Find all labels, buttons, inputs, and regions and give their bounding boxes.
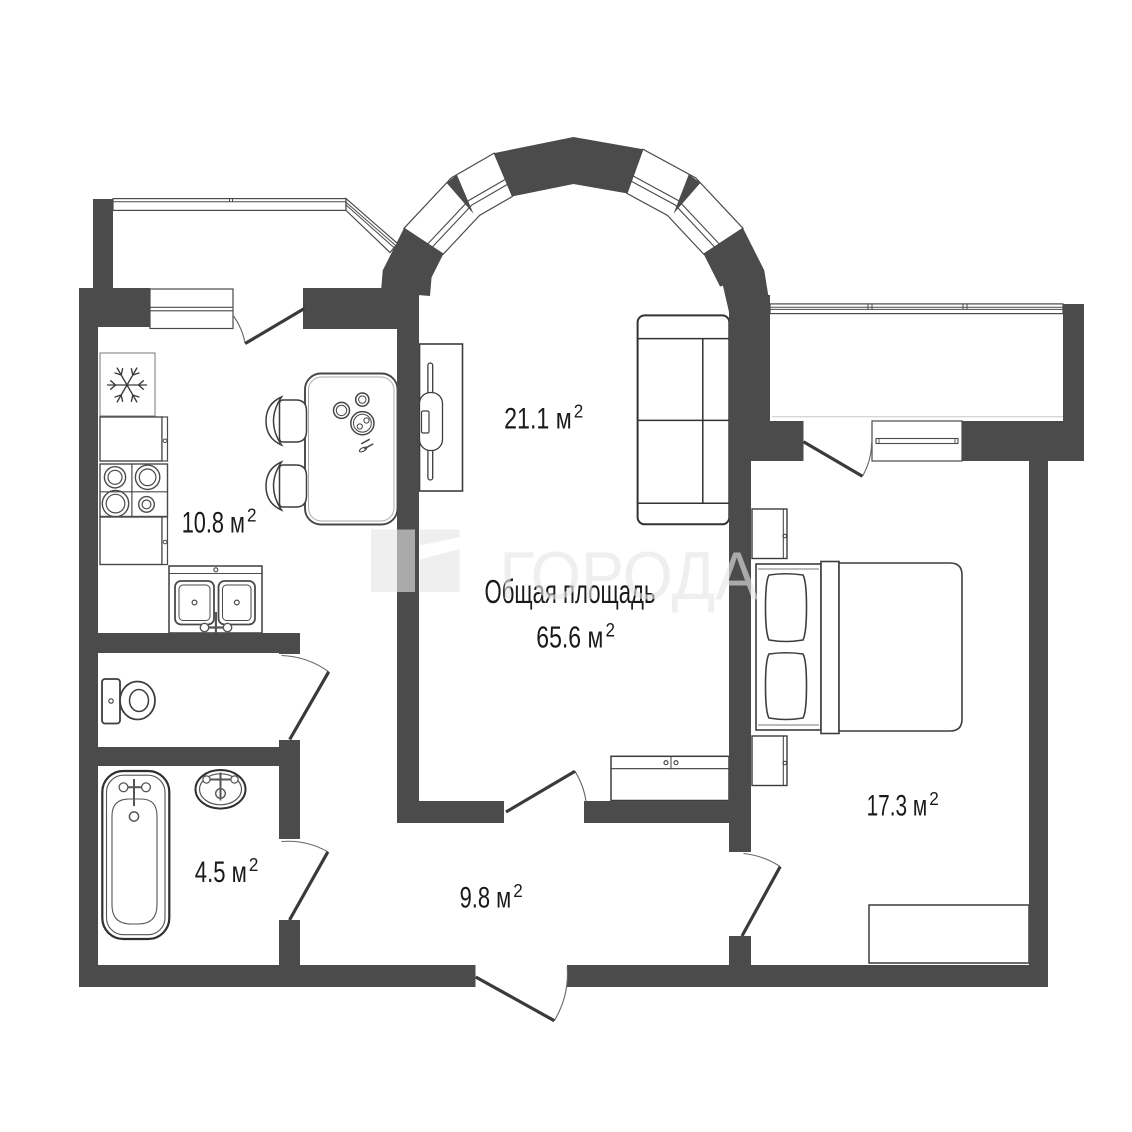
svg-text:2: 2 <box>513 881 523 901</box>
svg-text:2: 2 <box>247 506 257 526</box>
svg-text:4.5 м: 4.5 м <box>195 856 247 889</box>
svg-text:2: 2 <box>249 855 259 875</box>
svg-text:2: 2 <box>574 402 584 422</box>
svg-text:9.8 м: 9.8 м <box>460 882 512 915</box>
svg-text:ГОРОДА: ГОРОДА <box>499 538 759 614</box>
svg-text:10.8 м: 10.8 м <box>182 506 245 539</box>
svg-text:65.6 м: 65.6 м <box>536 620 603 655</box>
svg-text:2: 2 <box>606 620 616 642</box>
svg-text:21.1 м: 21.1 м <box>504 402 572 435</box>
svg-text:17.3 м: 17.3 м <box>867 790 928 823</box>
svg-text:2: 2 <box>929 789 939 809</box>
